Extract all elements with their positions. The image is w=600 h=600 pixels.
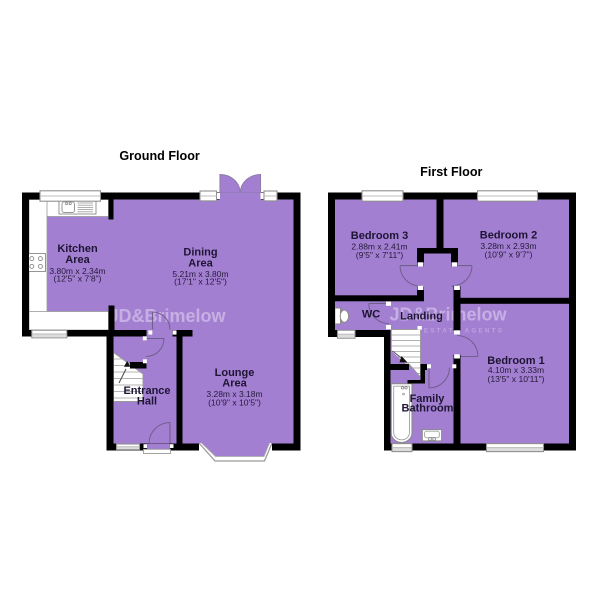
svg-text:Bedroom 2: Bedroom 2 xyxy=(480,229,537,241)
svg-text:Ground Floor: Ground Floor xyxy=(119,149,200,163)
svg-text:Landing: Landing xyxy=(400,310,443,322)
svg-text:Area: Area xyxy=(188,258,213,270)
svg-text:(9'5" x 7'11"): (9'5" x 7'11") xyxy=(356,250,404,260)
svg-text:JD&Brimelow: JD&Brimelow xyxy=(108,306,226,326)
svg-text:Area: Area xyxy=(65,254,90,266)
svg-text:Bedroom 3: Bedroom 3 xyxy=(351,230,408,242)
svg-text:Area: Area xyxy=(222,377,247,389)
svg-text:Bathroom: Bathroom xyxy=(402,402,454,414)
svg-text:(12'5" x 7'8"): (12'5" x 7'8") xyxy=(53,274,101,284)
svg-text:First Floor: First Floor xyxy=(420,165,482,179)
svg-text:Hall: Hall xyxy=(137,395,157,407)
svg-text:(10'9" x 10'5"): (10'9" x 10'5") xyxy=(208,397,261,407)
svg-text:ESTATE AGENTS: ESTATE AGENTS xyxy=(424,328,504,335)
svg-text:WC: WC xyxy=(362,308,380,320)
svg-text:(17'1" x 12'5"): (17'1" x 12'5") xyxy=(174,277,227,287)
svg-text:(13'5" x 10'11"): (13'5" x 10'11") xyxy=(488,374,545,384)
svg-text:(10'9" x 9'7"): (10'9" x 9'7") xyxy=(484,250,532,260)
